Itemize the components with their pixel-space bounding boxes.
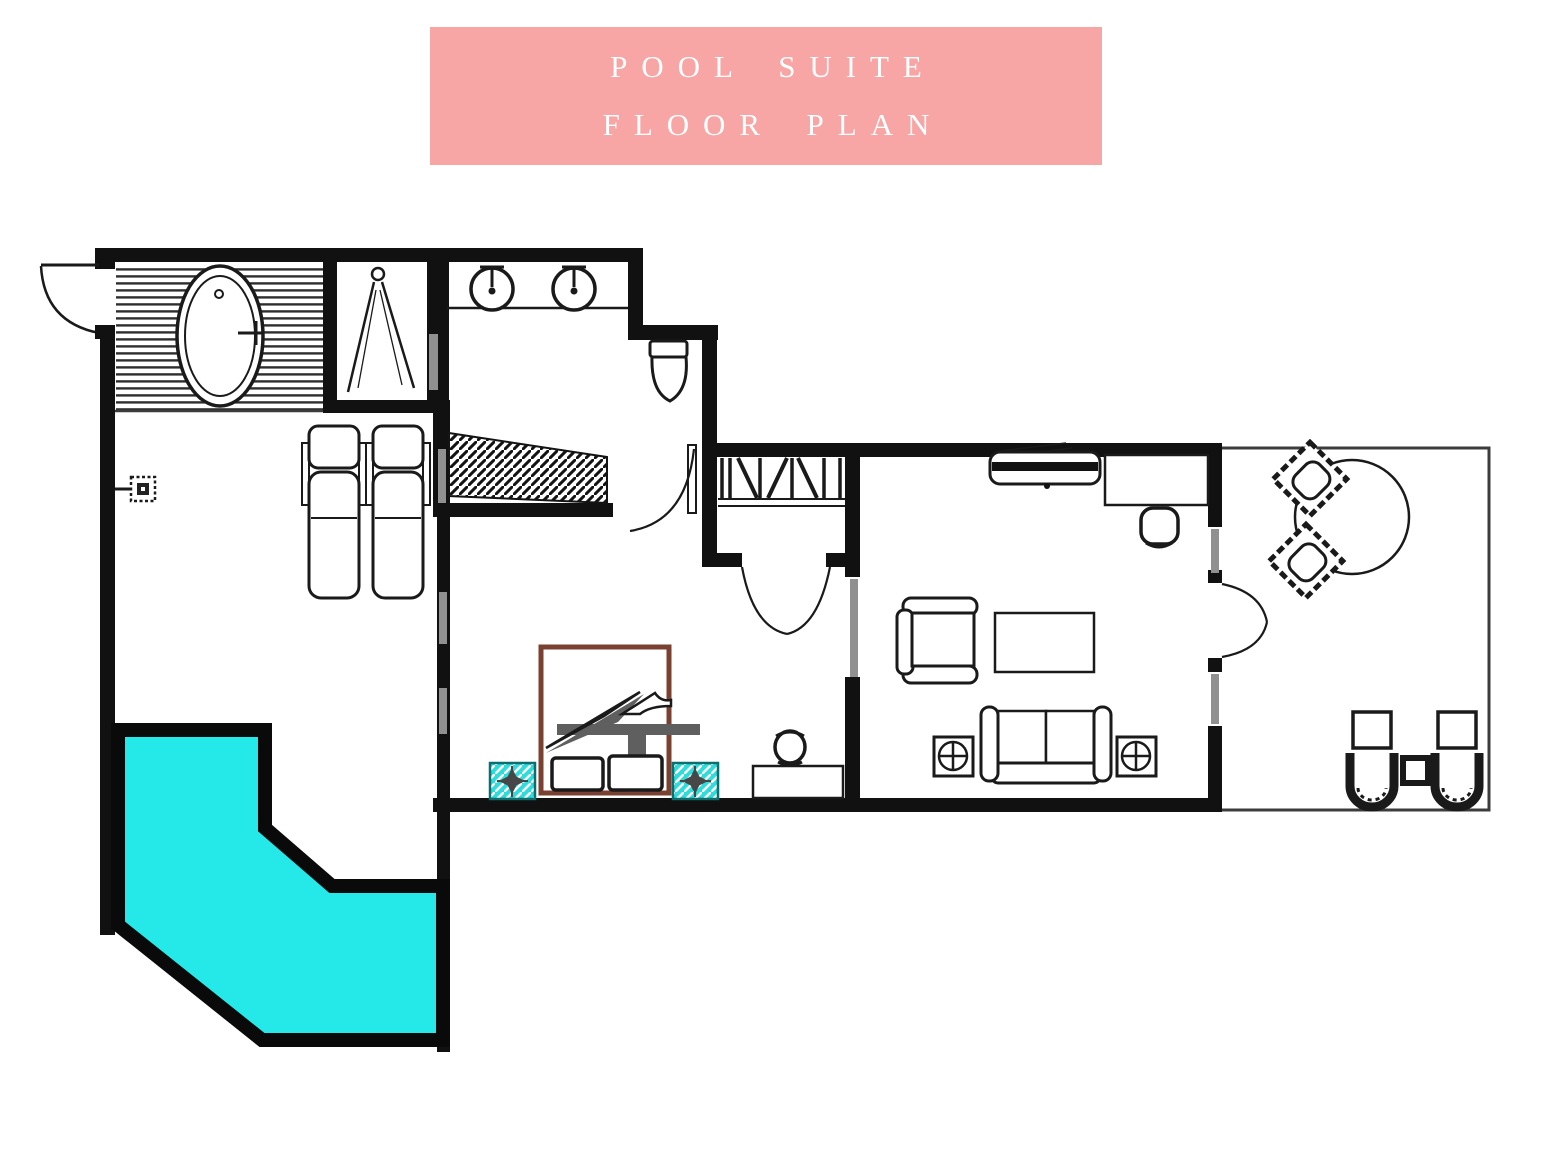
sofa-icon xyxy=(981,707,1111,783)
floor-plan-canvas xyxy=(0,0,1564,1154)
bathroom-door-icon xyxy=(630,445,696,531)
office-chair-icon xyxy=(1141,508,1178,547)
deck-lounger-icon xyxy=(1435,753,1479,807)
vanity-sinks-icon xyxy=(447,267,628,310)
deck-side-table-icon xyxy=(1403,758,1428,783)
wardrobe-hangers-icon xyxy=(718,458,845,506)
toilet-icon xyxy=(650,341,687,401)
side-table-icon xyxy=(1117,737,1156,776)
shower-icon xyxy=(348,268,414,392)
sun-lounger-icon xyxy=(302,426,366,598)
entry-door-icon xyxy=(41,265,115,339)
hall-double-door-icon xyxy=(742,567,830,634)
wall-light-icon xyxy=(115,477,155,501)
floor-plan-page: POOL SUITE FLOOR PLAN xyxy=(0,0,1564,1154)
deck-lounger-icon xyxy=(1350,753,1394,807)
bathtub-icon xyxy=(177,266,263,406)
balcony-door-icon xyxy=(1222,584,1267,657)
coffee-table-icon xyxy=(995,613,1094,672)
ramp-hatch-icon xyxy=(449,433,607,503)
nightstand-icon xyxy=(673,763,718,799)
footstool-icon xyxy=(1353,712,1476,748)
bedroom-desk-icon xyxy=(753,766,843,798)
side-table-icon xyxy=(934,737,973,776)
sun-lounger-icon xyxy=(366,426,430,598)
stool-icon xyxy=(775,731,805,765)
pool-icon xyxy=(118,730,443,1040)
armchair-icon xyxy=(897,598,977,683)
living-desk-icon xyxy=(1105,455,1208,505)
nightstand-icon xyxy=(490,763,535,799)
